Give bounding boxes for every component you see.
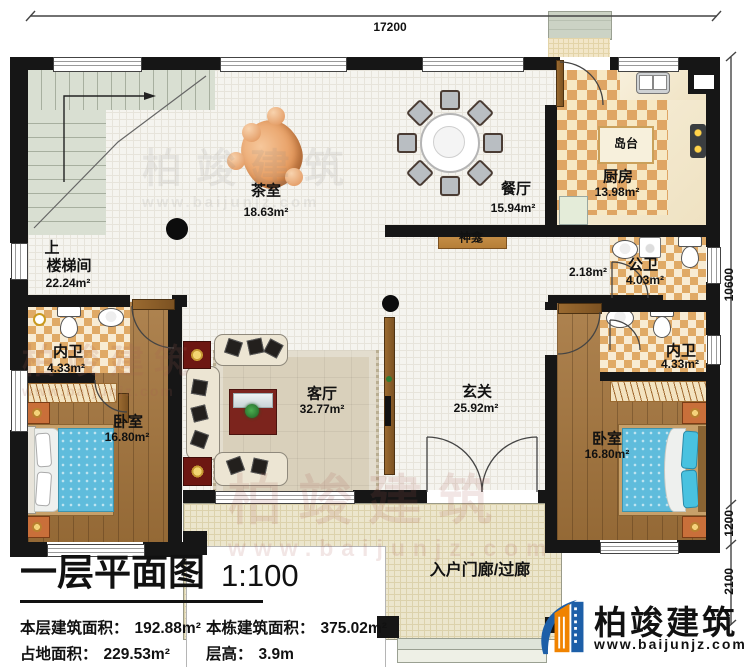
dim-tick: [726, 500, 736, 509]
tv: [385, 396, 391, 426]
porch-step: [397, 649, 547, 663]
wardrobe-left: [28, 383, 117, 403]
wall: [140, 57, 220, 70]
dining-chair: [440, 90, 460, 110]
area-living: 32.77m²: [300, 402, 345, 416]
bath-left-sink: [98, 308, 124, 327]
label-bedroom-right: 卧室: [592, 428, 622, 449]
wall: [522, 57, 560, 70]
window: [707, 335, 721, 365]
baijun-logo-icon: [534, 594, 590, 665]
label-kitchen: 厨房: [603, 166, 633, 187]
label-island: 岛台: [614, 135, 638, 152]
wall: [706, 363, 720, 553]
sofa-cushion: [251, 458, 269, 476]
wall: [600, 372, 720, 381]
dining-table-inner: [433, 126, 465, 158]
window: [11, 370, 28, 432]
dining-chair: [397, 133, 417, 153]
back-landing: [548, 38, 610, 57]
wall: [610, 57, 618, 70]
wall: [600, 300, 720, 312]
wall: [10, 295, 130, 307]
stat-value: 192.88m²: [135, 620, 201, 637]
wall: [168, 302, 182, 557]
tea-stool: [242, 123, 261, 142]
window: [220, 57, 347, 72]
title-underline: [20, 600, 263, 603]
public-toilet-bowl: [681, 246, 699, 268]
column: [382, 295, 399, 312]
window: [422, 57, 524, 72]
bed-right-headboard: [698, 426, 706, 512]
floor-plan: 柏竣建筑 www.baijunjz.com 柏竣建筑 www.baijunjz.…: [0, 0, 750, 667]
area-kitchen: 13.98m²: [595, 185, 640, 199]
stat-label: 占地面积：: [20, 646, 98, 663]
area-dining: 15.94m²: [491, 201, 536, 215]
niche: [694, 75, 714, 89]
dim-right-lower: 2100: [722, 568, 736, 595]
tea-stool: [227, 152, 245, 170]
tea-stool: [285, 168, 303, 186]
label-public-bath: 公卫: [628, 254, 658, 275]
door-leaf: [558, 303, 602, 314]
window: [707, 247, 721, 284]
dining-chair: [483, 133, 503, 153]
label-stairwell: 楼梯间: [46, 255, 91, 276]
wall: [345, 57, 422, 70]
wall: [183, 490, 215, 503]
area-bath-right: 4.33m²: [661, 357, 699, 371]
label-bedroom-left: 卧室: [113, 411, 143, 432]
door-leaf: [556, 60, 564, 107]
label-living: 客厅: [307, 383, 337, 404]
tv-plant: [386, 376, 392, 382]
area-bedroom-left: 16.80m²: [105, 430, 150, 444]
bath-right-toilet-bowl: [653, 316, 671, 338]
tea-stool: [267, 107, 285, 125]
stat-footprint: 占地面积：229.53m²: [20, 642, 170, 664]
window: [11, 243, 28, 280]
page-title: 一层平面图: [20, 554, 205, 591]
back-steps: [548, 11, 612, 40]
wall: [10, 278, 28, 370]
stairs-upper-run: [28, 70, 215, 110]
stat-building-area: 本栋建筑面积：375.02m²: [206, 616, 387, 638]
window: [618, 57, 679, 72]
window: [215, 491, 355, 504]
area-bedroom-right: 16.80m²: [585, 447, 630, 461]
kitchen-sink-basin: [653, 75, 667, 90]
wall: [353, 490, 427, 503]
stove: [690, 124, 706, 158]
area-bath-left: 4.33m²: [47, 361, 85, 375]
stat-floor-area: 本层建筑面积：192.88m²: [20, 616, 201, 638]
wall: [10, 57, 28, 243]
bed-right-pillow: [681, 430, 700, 469]
wall: [545, 540, 600, 553]
wall: [545, 355, 557, 553]
bed-left-pillow: [35, 472, 52, 507]
stat-value: 3.9m: [259, 646, 294, 663]
logo-url: www.baijunjz.com: [594, 636, 747, 652]
label-tea-room: 茶室: [251, 180, 281, 201]
title-block: 一层平面图 1:100: [20, 554, 299, 591]
stat-value: 229.53m²: [104, 646, 170, 663]
stat-value: 375.02m²: [321, 620, 387, 637]
column: [166, 218, 188, 240]
bed-right-pillow: [681, 469, 700, 508]
wall: [538, 490, 557, 503]
wall: [10, 430, 28, 557]
window: [600, 542, 679, 554]
kitchen-sink-basin: [639, 75, 653, 90]
stairs-lower-run: [28, 110, 106, 235]
sofa-cushion: [247, 338, 265, 356]
dim-tick: [712, 11, 721, 21]
stat-label: 本层建筑面积：: [20, 620, 129, 637]
nightstand: [682, 402, 708, 424]
wall: [545, 105, 557, 225]
stat-label: 层高：: [206, 646, 253, 663]
wall: [677, 540, 720, 553]
window: [53, 57, 142, 72]
dim-right-upper: 10600: [722, 268, 736, 301]
scale-label: 1:100: [221, 560, 299, 591]
dim-tick: [726, 540, 736, 549]
label-porch: 入户门廊/过廊: [430, 556, 530, 580]
area-public-bath: 4.03m²: [626, 273, 664, 287]
bath-left-toilet-bowl: [60, 316, 78, 338]
wall: [385, 225, 720, 237]
nightstand: [682, 516, 708, 538]
label-bath-left: 内卫: [53, 341, 83, 362]
area-corridor: 2.18m²: [569, 265, 607, 279]
side-table-lamp: [183, 457, 212, 486]
bed-left-pillow: [35, 433, 52, 468]
label-shrine: 神龛: [459, 229, 483, 246]
dim-tick: [726, 52, 736, 61]
stat-label: 本栋建筑面积：: [206, 620, 315, 637]
dining-chair: [440, 176, 460, 196]
area-foyer: 25.92m²: [454, 401, 499, 415]
wardrobe-right: [610, 381, 708, 402]
side-table-lamp: [183, 341, 211, 369]
floor-drain: [33, 313, 46, 326]
label-dining: 餐厅: [501, 178, 531, 199]
fridge: [559, 196, 588, 225]
dim-right-middle: 1200: [722, 510, 736, 537]
area-stairwell: 22.24m²: [46, 276, 91, 290]
sofa-cushion: [191, 379, 208, 396]
label-foyer: 玄关: [462, 381, 492, 402]
dim-tick: [26, 11, 35, 21]
plant: [245, 404, 259, 418]
dim-top: 17200: [355, 20, 425, 34]
wall: [545, 302, 557, 310]
door-leaf: [132, 299, 175, 310]
area-tea-room: 18.63m²: [244, 205, 289, 219]
stat-floor-height: 层高：3.9m: [206, 642, 294, 664]
